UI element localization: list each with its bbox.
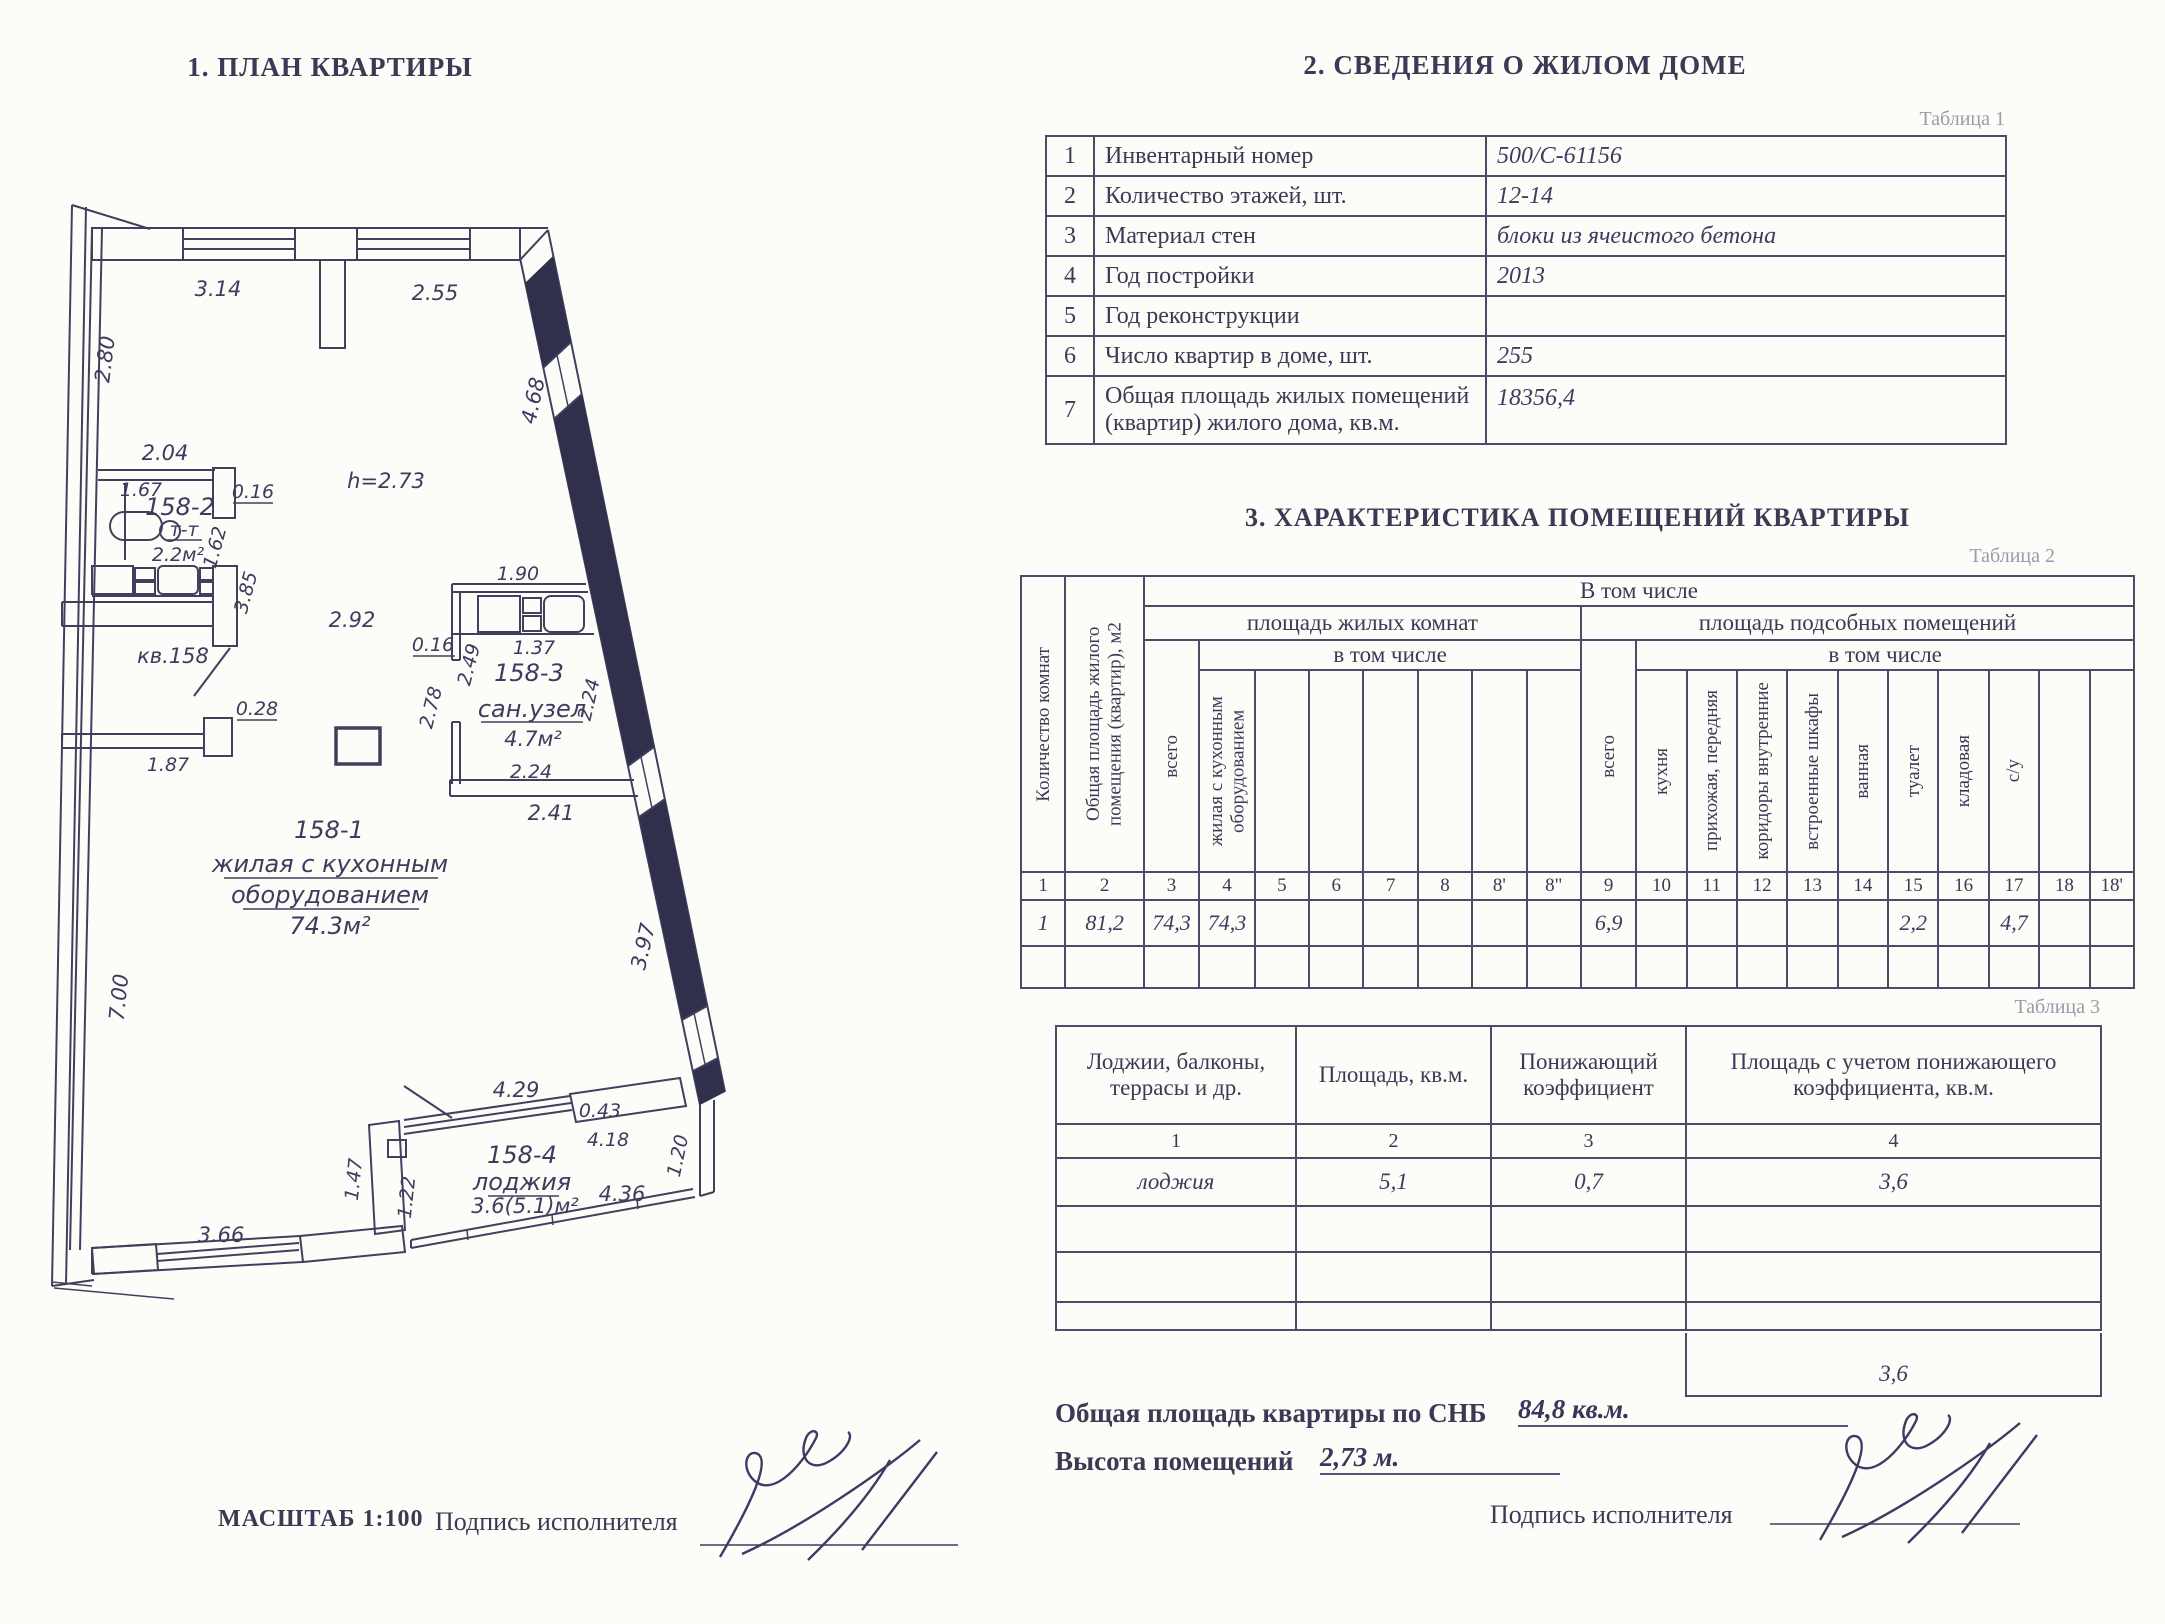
empty-cell bbox=[1636, 946, 1686, 988]
empty-cell bbox=[1296, 1252, 1491, 1302]
dim-loggia-pier: 0.43 bbox=[579, 1100, 621, 1122]
empty-cell bbox=[1686, 1206, 2101, 1252]
col-num: 15 bbox=[1888, 872, 1938, 900]
header-row-areas: площадь жилых комнат площадь подсобных п… bbox=[1021, 606, 2134, 640]
empty-cell bbox=[1056, 1302, 1296, 1330]
characteristics-table: Количество комнат Общая площадь жилого п… bbox=[1020, 575, 2135, 989]
dim-left-upper: 2.80 bbox=[90, 334, 120, 383]
col-header-total-area: Общая площадь жилого помещения (квартир)… bbox=[1065, 576, 1144, 872]
subheader-incl-living: в том числе bbox=[1199, 640, 1581, 670]
data-cell bbox=[1737, 900, 1787, 946]
empty-row bbox=[1056, 1206, 2101, 1252]
empty-cell bbox=[1056, 1206, 1296, 1252]
dim-passage: 2.92 bbox=[329, 608, 376, 632]
data-cell bbox=[2039, 900, 2089, 946]
executor-signature-left bbox=[700, 1431, 958, 1560]
room-height-value: 2,73 м. bbox=[1320, 1442, 1560, 1475]
col-header-empty bbox=[1472, 670, 1526, 872]
empty-cell bbox=[1686, 1252, 2101, 1302]
row-label: Материал стен bbox=[1094, 216, 1486, 256]
col-header-empty bbox=[2090, 670, 2134, 872]
row-label: Инвентарный номер bbox=[1094, 136, 1486, 176]
data-cell: 1 bbox=[1021, 900, 1065, 946]
dim-slant-upper: 4.68 bbox=[517, 375, 550, 426]
dim-kitchen-d1: 1.62 bbox=[199, 524, 231, 571]
data-cell: 0,7 bbox=[1491, 1158, 1686, 1206]
loggia-data-row: лоджия 5,1 0,7 3,6 bbox=[1056, 1158, 2101, 1206]
col-num: 14 bbox=[1838, 872, 1888, 900]
empty-cell bbox=[1787, 946, 1837, 988]
data-cell bbox=[2090, 900, 2134, 946]
building-info-title: 2. СВЕДЕНИЯ О ЖИЛОМ ДОМЕ bbox=[1045, 50, 2005, 81]
row-label: Количество этажей, шт. bbox=[1094, 176, 1486, 216]
row-value: 2013 bbox=[1486, 256, 2006, 296]
table2-label: Таблица 2 bbox=[1895, 545, 2055, 568]
table-row: 4 Год постройки 2013 bbox=[1046, 256, 2006, 296]
empty-cell bbox=[1363, 946, 1417, 988]
col-num: 16 bbox=[1938, 872, 1988, 900]
scanned-technical-passport-page: 3.14 2.55 2.80 4.68 2.04 1.67 0.16 158-2… bbox=[0, 0, 2165, 1624]
col-num: 10 bbox=[1636, 872, 1686, 900]
col-num: 3 bbox=[1491, 1124, 1686, 1158]
scale-label: МАСШТАБ 1:100 bbox=[218, 1506, 423, 1533]
room-area-158-3: 4.7м² bbox=[504, 727, 562, 751]
data-cell bbox=[1687, 900, 1737, 946]
floor-plan-dimensions: 3.14 2.55 2.80 4.68 2.04 1.67 0.16 158-2… bbox=[90, 277, 693, 1247]
col-header-hall: прихожая, передняя bbox=[1687, 670, 1737, 872]
empty-cell bbox=[2090, 946, 2134, 988]
empty-cell bbox=[1686, 1302, 2101, 1330]
col-header-toilet: туалет bbox=[1888, 670, 1938, 872]
loggia-total-cell: 3,6 bbox=[1685, 1333, 2102, 1397]
total-area-value: 84,8 кв.м. bbox=[1518, 1394, 1848, 1427]
empty-cell bbox=[1021, 946, 1065, 988]
header-row-group: Количество комнат Общая площадь жилого п… bbox=[1021, 576, 2134, 606]
row-value: 500/С-61156 bbox=[1486, 136, 2006, 176]
col-num: 17 bbox=[1989, 872, 2039, 900]
slant-wall-fill bbox=[525, 256, 725, 1105]
empty-cell bbox=[1065, 946, 1144, 988]
col-num: 3 bbox=[1144, 872, 1199, 900]
data-cell bbox=[1838, 900, 1888, 946]
col-num: 7 bbox=[1363, 872, 1417, 900]
room-name-tt: т-т bbox=[170, 519, 200, 541]
data-cell bbox=[1938, 900, 1988, 946]
dim-bath-h1: 2.49 bbox=[453, 641, 485, 687]
plan-title: 1. ПЛАН КВАРТИРЫ bbox=[20, 52, 640, 83]
col-num: 2 bbox=[1065, 872, 1144, 900]
row-value: 12-14 bbox=[1486, 176, 2006, 216]
row-num: 4 bbox=[1046, 256, 1094, 296]
data-cell bbox=[1309, 900, 1363, 946]
building-info-table: 1 Инвентарный номер 500/С-61156 2 Количе… bbox=[1045, 135, 2007, 445]
row-num: 6 bbox=[1046, 336, 1094, 376]
room-number-158-2: 158-2 bbox=[145, 493, 215, 521]
col-header-kitchen: кухня bbox=[1636, 670, 1686, 872]
total-area-label: Общая площадь квартиры по СНБ bbox=[1055, 1398, 1486, 1429]
col-num: 4 bbox=[1686, 1124, 2101, 1158]
empty-cell bbox=[1199, 946, 1254, 988]
loggia-col-coef: Понижающий коэффициент bbox=[1491, 1026, 1686, 1124]
col-num: 9 bbox=[1581, 872, 1636, 900]
row-value: 18356,4 bbox=[1486, 376, 2006, 444]
empty-cell bbox=[1309, 946, 1363, 988]
data-cell: 5,1 bbox=[1296, 1158, 1491, 1206]
data-cell: 74,3 bbox=[1144, 900, 1199, 946]
col-num: 13 bbox=[1787, 872, 1837, 900]
col-num: 1 bbox=[1021, 872, 1065, 900]
empty-cell bbox=[2039, 946, 2089, 988]
dim-entry-width: 1.87 bbox=[147, 754, 189, 776]
room-area-158-2: 2.2м² bbox=[152, 544, 205, 566]
dim-loggia-top: 4.29 bbox=[493, 1078, 540, 1102]
row-num: 7 bbox=[1046, 376, 1094, 444]
col-num: 4 bbox=[1199, 872, 1254, 900]
data-cell bbox=[1636, 900, 1686, 946]
col-header-empty bbox=[1418, 670, 1472, 872]
col-header-vsego-living: всего bbox=[1144, 640, 1199, 872]
col-header-empty bbox=[1527, 670, 1581, 872]
dim-slant-mid: 2.24 bbox=[574, 677, 605, 723]
empty-cell bbox=[1838, 946, 1888, 988]
data-cell: 3,6 bbox=[1686, 1158, 2101, 1206]
subheader-incl-aux: в том числе bbox=[1636, 640, 2134, 670]
data-cell: 4,7 bbox=[1989, 900, 2039, 946]
empty-row bbox=[1056, 1252, 2101, 1302]
empty-cell bbox=[1056, 1252, 1296, 1302]
dim-bath-top: 1.90 bbox=[497, 563, 539, 585]
col-num: 11 bbox=[1687, 872, 1737, 900]
dim-kitchen-d2: 3.85 bbox=[230, 569, 262, 616]
data-cell bbox=[1472, 900, 1526, 946]
room-number-158-4: 158-4 bbox=[487, 1141, 557, 1169]
col-num: 8' bbox=[1472, 872, 1526, 900]
apartment-label: кв.158 bbox=[137, 644, 209, 668]
signature-label-right: Подпись исполнителя bbox=[1490, 1500, 1733, 1530]
header-row-incl: всего в том числе всего в том числе bbox=[1021, 640, 2134, 670]
numbering-row: 1 2 3 4 5 6 7 8 8' 8" 9 10 11 12 13 14 1… bbox=[1021, 872, 2134, 900]
col-header-empty bbox=[2039, 670, 2089, 872]
row-num: 2 bbox=[1046, 176, 1094, 216]
row-num: 1 bbox=[1046, 136, 1094, 176]
row-value: блоки из ячеистого бетона bbox=[1486, 216, 2006, 256]
room-number-158-1: 158-1 bbox=[294, 816, 364, 844]
col-num: 12 bbox=[1737, 872, 1787, 900]
empty-cell bbox=[1296, 1206, 1491, 1252]
row-label: Год реконструкции bbox=[1094, 296, 1486, 336]
dim-bath-inner: 1.37 bbox=[513, 637, 555, 659]
empty-cell bbox=[1472, 946, 1526, 988]
dim-top-window-1: 3.14 bbox=[195, 277, 242, 301]
col-num: 8 bbox=[1418, 872, 1472, 900]
loggia-col-name: Лоджии, балконы, террасы и др. bbox=[1056, 1026, 1296, 1124]
loggia-total-value: 3,6 bbox=[1879, 1361, 1908, 1387]
col-num: 18 bbox=[2039, 872, 2089, 900]
group-header-aux: площадь подсобных помещений bbox=[1581, 606, 2134, 640]
col-header-storage: кладовая bbox=[1938, 670, 1988, 872]
col-header-su: с/у bbox=[1989, 670, 2039, 872]
dim-bath-width: 2.24 bbox=[510, 761, 552, 783]
dim-bath-bottom: 2.41 bbox=[528, 801, 575, 825]
table3-label: Таблица 3 bbox=[1940, 996, 2100, 1019]
empty-cell bbox=[1989, 946, 2039, 988]
dim-kitchen-wall: 0.16 bbox=[232, 481, 274, 503]
room-area-158-4: 3.6(5.1)м² bbox=[471, 1194, 579, 1218]
col-header-bath: ванная bbox=[1838, 670, 1888, 872]
table-row: 7 Общая площадь жилых помещений (квартир… bbox=[1046, 376, 2006, 444]
col-num: 6 bbox=[1309, 872, 1363, 900]
table-row: 2 Количество этажей, шт. 12-14 bbox=[1046, 176, 2006, 216]
col-header-living-kitchen: жилая с кухонным оборудованием bbox=[1199, 670, 1254, 872]
table-row: 1 Инвентарный номер 500/С-61156 bbox=[1046, 136, 2006, 176]
col-header-rooms: Количество комнат bbox=[1021, 576, 1065, 872]
signature-label-left: Подпись исполнителя bbox=[435, 1507, 678, 1537]
empty-cell bbox=[1418, 946, 1472, 988]
group-header-total: В том числе bbox=[1144, 576, 2134, 606]
table1-label: Таблица 1 bbox=[1845, 108, 2005, 131]
empty-cell bbox=[1888, 946, 1938, 988]
data-cell bbox=[1363, 900, 1417, 946]
room-name-line1: жилая с кухонным bbox=[211, 850, 448, 878]
col-header-vsego-aux: всего bbox=[1581, 640, 1636, 872]
dim-kitchen-inner: 1.67 bbox=[120, 479, 162, 501]
characteristics-title: 3. ХАРАКТЕРИСТИКА ПОМЕЩЕНИЙ КВАРТИРЫ bbox=[1020, 503, 2135, 533]
empty-cell bbox=[1491, 1302, 1686, 1330]
empty-cell bbox=[1938, 946, 1988, 988]
data-cell bbox=[1255, 900, 1309, 946]
dim-bath-wall: 0.16 bbox=[412, 634, 454, 656]
dim-loggia-left1: 1.47 bbox=[341, 1157, 367, 1201]
dim-loggia-bottom: 4.36 bbox=[599, 1182, 646, 1206]
empty-cell bbox=[1491, 1206, 1686, 1252]
dim-entry-step: 0.28 bbox=[236, 698, 278, 720]
dim-top-window-2: 2.55 bbox=[412, 281, 459, 305]
empty-cell bbox=[1296, 1302, 1491, 1330]
col-header-corridors: коридоры внутренние bbox=[1737, 670, 1787, 872]
floor-plan-walls bbox=[52, 205, 725, 1299]
dim-slant-lower: 3.97 bbox=[626, 920, 660, 972]
loggia-numbering-row: 1 2 3 4 bbox=[1056, 1124, 2101, 1158]
dim-left-lower: 7.00 bbox=[105, 973, 134, 1022]
empty-row bbox=[1021, 946, 2134, 988]
col-num: 5 bbox=[1255, 872, 1309, 900]
col-num: 8" bbox=[1527, 872, 1581, 900]
data-cell bbox=[1787, 900, 1837, 946]
data-cell: 6,9 bbox=[1581, 900, 1636, 946]
data-row: 1 81,2 74,3 74,3 6,9 2,2 4,7 bbox=[1021, 900, 2134, 946]
empty-cell bbox=[1737, 946, 1787, 988]
dim-ceiling-height: h=2.73 bbox=[347, 469, 425, 493]
col-header-empty bbox=[1363, 670, 1417, 872]
empty-cell bbox=[1581, 946, 1636, 988]
row-num: 5 bbox=[1046, 296, 1094, 336]
dim-bath-h2: 2.78 bbox=[415, 684, 447, 730]
row-num: 3 bbox=[1046, 216, 1094, 256]
table-row: 5 Год реконструкции bbox=[1046, 296, 2006, 336]
loggia-col-adj-area: Площадь с учетом понижающего коэффициент… bbox=[1686, 1026, 2101, 1124]
room-height-label: Высота помещений bbox=[1055, 1446, 1293, 1477]
row-label: Общая площадь жилых помещений (квартир) … bbox=[1094, 376, 1486, 444]
loggia-table: Лоджии, балконы, террасы и др. Площадь, … bbox=[1055, 1025, 2102, 1331]
room-name-line2: оборудованием bbox=[231, 881, 429, 909]
dim-loggia-inner: 4.18 bbox=[587, 1129, 629, 1151]
col-num: 2 bbox=[1296, 1124, 1491, 1158]
empty-cell bbox=[1687, 946, 1737, 988]
data-cell: лоджия bbox=[1056, 1158, 1296, 1206]
data-cell: 2,2 bbox=[1888, 900, 1938, 946]
group-header-living: площадь жилых комнат bbox=[1144, 606, 1581, 640]
table-row: 6 Число квартир в доме, шт. 255 bbox=[1046, 336, 2006, 376]
data-cell bbox=[1418, 900, 1472, 946]
loggia-col-area: Площадь, кв.м. bbox=[1296, 1026, 1491, 1124]
data-cell: 81,2 bbox=[1065, 900, 1144, 946]
room-name-loggia: лоджия bbox=[472, 1168, 571, 1196]
row-value bbox=[1486, 296, 2006, 336]
row-label: Число квартир в доме, шт. bbox=[1094, 336, 1486, 376]
room-number-158-3: 158-3 bbox=[494, 659, 564, 687]
data-cell bbox=[1527, 900, 1581, 946]
empty-row bbox=[1056, 1302, 2101, 1330]
col-header-empty bbox=[1255, 670, 1309, 872]
empty-cell bbox=[1527, 946, 1581, 988]
room-area-158-1: 74.3м² bbox=[289, 912, 371, 940]
dim-loggia-left2: 1.22 bbox=[394, 1175, 420, 1219]
col-header-empty bbox=[1309, 670, 1363, 872]
row-label: Год постройки bbox=[1094, 256, 1486, 296]
data-cell: 74,3 bbox=[1199, 900, 1254, 946]
table-row: 3 Материал стен блоки из ячеистого бетон… bbox=[1046, 216, 2006, 256]
executor-signature-right bbox=[1770, 1414, 2037, 1543]
empty-cell bbox=[1255, 946, 1309, 988]
col-num: 1 bbox=[1056, 1124, 1296, 1158]
dim-kitchen-width: 2.04 bbox=[142, 441, 189, 465]
col-header-wardrobes: встроенные шкафы bbox=[1787, 670, 1837, 872]
loggia-header-row: Лоджии, балконы, террасы и др. Площадь, … bbox=[1056, 1026, 2101, 1124]
empty-cell bbox=[1491, 1252, 1686, 1302]
row-value: 255 bbox=[1486, 336, 2006, 376]
room-name-sanuzel: сан.узел bbox=[478, 695, 586, 723]
dim-loggia-right: 1.20 bbox=[663, 1133, 693, 1179]
empty-cell bbox=[1144, 946, 1199, 988]
dim-bottom-window: 3.66 bbox=[198, 1223, 245, 1247]
col-num: 18' bbox=[2090, 872, 2134, 900]
